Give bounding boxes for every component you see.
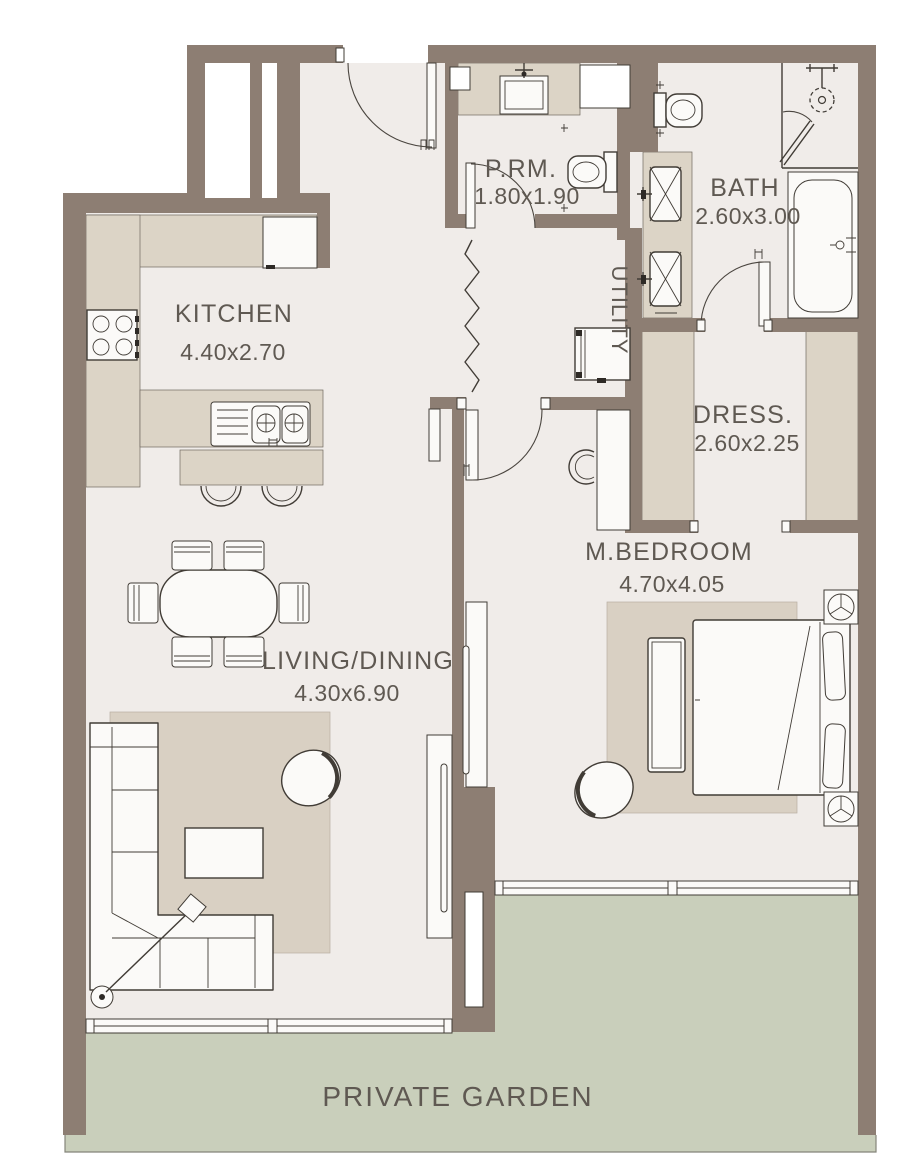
living-window-band <box>86 1019 452 1033</box>
label-living-dining-dims: 4.30x6.90 <box>294 680 400 706</box>
dining-table <box>160 570 277 637</box>
nightstand-bottom <box>824 792 858 826</box>
label-utility: UTILITY <box>607 266 632 355</box>
label-powder-room-dims: 1.80x1.90 <box>474 183 580 209</box>
label-dress-dims: 2.60x2.25 <box>694 430 800 456</box>
label-private-garden: PRIVATE GARDEN <box>322 1081 593 1112</box>
kitchen-sink <box>211 402 310 446</box>
coffee-table <box>185 828 263 878</box>
kitchen-fridge <box>263 217 317 269</box>
kitchen-stove <box>87 310 139 360</box>
label-dress: DRESS. <box>693 401 793 429</box>
label-kitchen: KITCHEN <box>175 300 293 328</box>
bedroom-bench <box>648 638 685 772</box>
floor-plan-svg: KITCHEN 4.40x2.70 P.RM. 1.80x1.90 BATH 2… <box>0 0 900 1174</box>
label-master-bedroom-dims: 4.70x4.05 <box>619 571 725 597</box>
label-living-dining: LIVING/DINING <box>262 647 454 675</box>
nightstand-top <box>824 590 858 624</box>
label-master-bedroom: M.BEDROOM <box>585 538 753 566</box>
label-bath-dims: 2.60x3.00 <box>695 203 801 229</box>
wardrobe-east <box>806 330 858 522</box>
bed <box>693 620 850 795</box>
desk <box>597 410 630 530</box>
label-powder-room: P.RM. <box>485 155 557 183</box>
wardrobe-west <box>642 330 694 522</box>
label-kitchen-dims: 4.40x2.70 <box>180 339 286 365</box>
kitchen-island <box>180 450 323 485</box>
bathtub <box>788 172 858 318</box>
bedroom-window-band <box>495 881 858 895</box>
tv-console-bedroom <box>463 602 487 787</box>
label-bath: BATH <box>710 174 780 202</box>
floor-plan-page: KITCHEN 4.40x2.70 P.RM. 1.80x1.90 BATH 2… <box>0 0 900 1174</box>
